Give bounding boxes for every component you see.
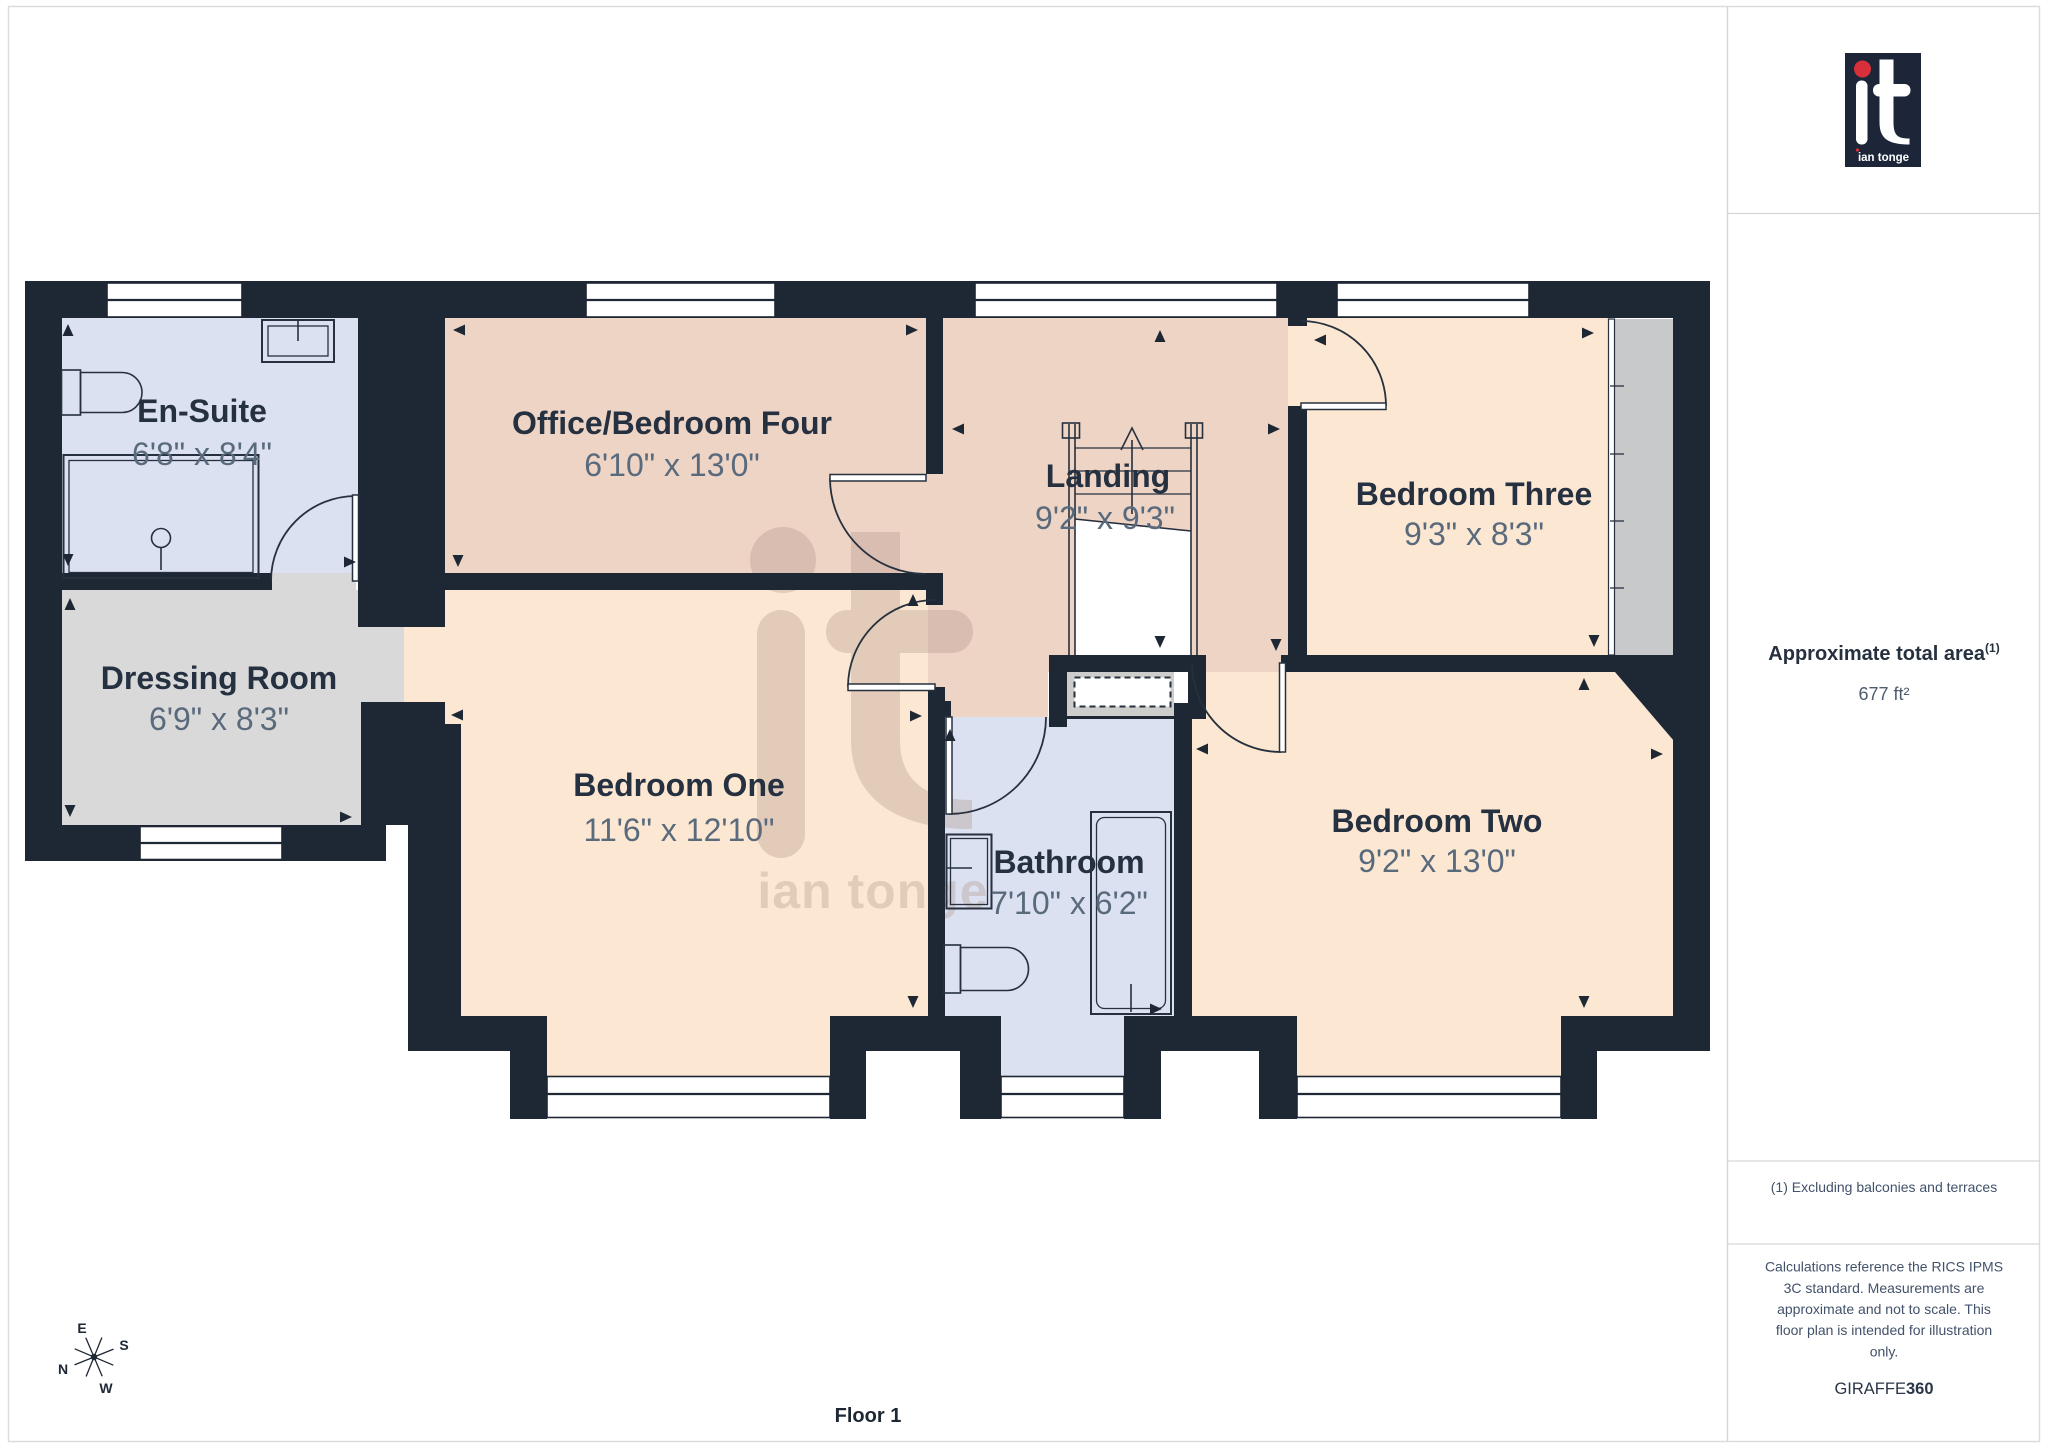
svg-text:Dressing Room: Dressing Room	[101, 660, 337, 696]
svg-text:En-Suite: En-Suite	[137, 393, 267, 429]
svg-text:677 ft²: 677 ft²	[1858, 684, 1909, 704]
svg-text:Bedroom Two: Bedroom Two	[1332, 803, 1543, 839]
svg-text:floor plan is intended for ill: floor plan is intended for illustration	[1776, 1322, 1992, 1338]
svg-text:11'6" x 12'10": 11'6" x 12'10"	[584, 812, 775, 848]
svg-text:(1) Excluding balconies and te: (1) Excluding balconies and terraces	[1771, 1179, 1997, 1195]
svg-text:9'2" x 13'0": 9'2" x 13'0"	[1358, 843, 1516, 879]
svg-text:6'10" x 13'0": 6'10" x 13'0"	[584, 447, 760, 483]
svg-text:GIRAFFE360: GIRAFFE360	[1834, 1380, 1933, 1398]
svg-text:Calculations reference the RIC: Calculations reference the RICS IPMS	[1765, 1259, 2003, 1275]
svg-text:S: S	[119, 1337, 128, 1353]
svg-text:approximate and not to scale.: approximate and not to scale. This	[1777, 1301, 1991, 1317]
svg-text:Bedroom One: Bedroom One	[573, 767, 785, 803]
svg-text:9'2" x 9'3": 9'2" x 9'3"	[1035, 500, 1175, 536]
svg-text:N: N	[58, 1361, 68, 1377]
svg-text:Bedroom Three: Bedroom Three	[1356, 476, 1592, 512]
svg-text:Landing: Landing	[1046, 458, 1170, 494]
svg-text:ian tonge: ian tonge	[757, 863, 988, 919]
svg-text:6'9" x 8'3": 6'9" x 8'3"	[149, 701, 289, 737]
svg-text:Approximate total area(1): Approximate total area(1)	[1768, 641, 1999, 665]
svg-text:W: W	[99, 1380, 113, 1396]
svg-text:Bathroom: Bathroom	[993, 844, 1144, 880]
svg-text:only.: only.	[1870, 1344, 1899, 1360]
svg-text:Office/Bedroom Four: Office/Bedroom Four	[512, 405, 832, 441]
svg-text:Floor 1: Floor 1	[835, 1405, 902, 1427]
svg-text:7'10" x 6'2": 7'10" x 6'2"	[990, 885, 1148, 921]
svg-text:3C standard. Measurements are: 3C standard. Measurements are	[1784, 1280, 1985, 1296]
svg-text:E: E	[77, 1320, 86, 1336]
svg-text:9'3" x 8'3": 9'3" x 8'3"	[1404, 516, 1544, 552]
svg-text:6'8" x 8'4": 6'8" x 8'4"	[132, 436, 272, 472]
svg-text:ian tonge: ian tonge	[1858, 152, 1909, 164]
